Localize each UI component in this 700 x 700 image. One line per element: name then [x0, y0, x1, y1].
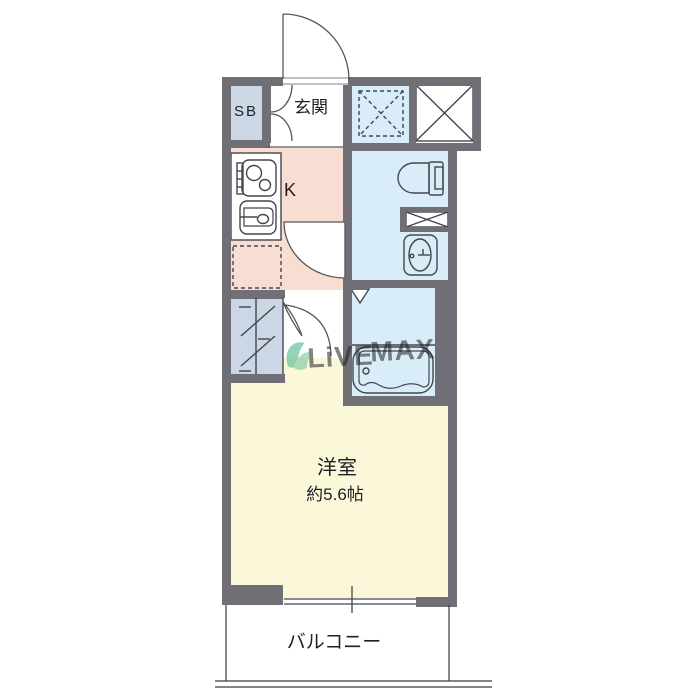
pipe-space-x-icon: [416, 85, 473, 141]
watermark-text-left: LiVE: [307, 339, 375, 373]
balcony-label: バルコニー: [287, 632, 382, 653]
main-room-label: 洋室: [317, 456, 357, 479]
main-room-size-label: 約5.6帖: [306, 485, 364, 504]
watermark-text-right: MAX: [369, 333, 436, 367]
entrance-label: 玄関: [294, 98, 328, 117]
kitchen-label: K: [284, 180, 296, 200]
floor-plan-svg: SB 玄関 K 洋室 約5.6帖 バルコニー LiVE MAX: [0, 0, 700, 700]
washing-machine-space-icon: [406, 212, 448, 227]
entrance-door-icon: [283, 14, 349, 80]
closet-icon: [229, 298, 283, 376]
kitchen-counter: [231, 153, 281, 240]
shoe-box-label: SB: [234, 103, 258, 120]
floor-plan-image: SB 玄関 K 洋室 約5.6帖 バルコニー LiVE MAX: [0, 0, 700, 700]
shoe-box-doors-icon: [271, 85, 292, 141]
